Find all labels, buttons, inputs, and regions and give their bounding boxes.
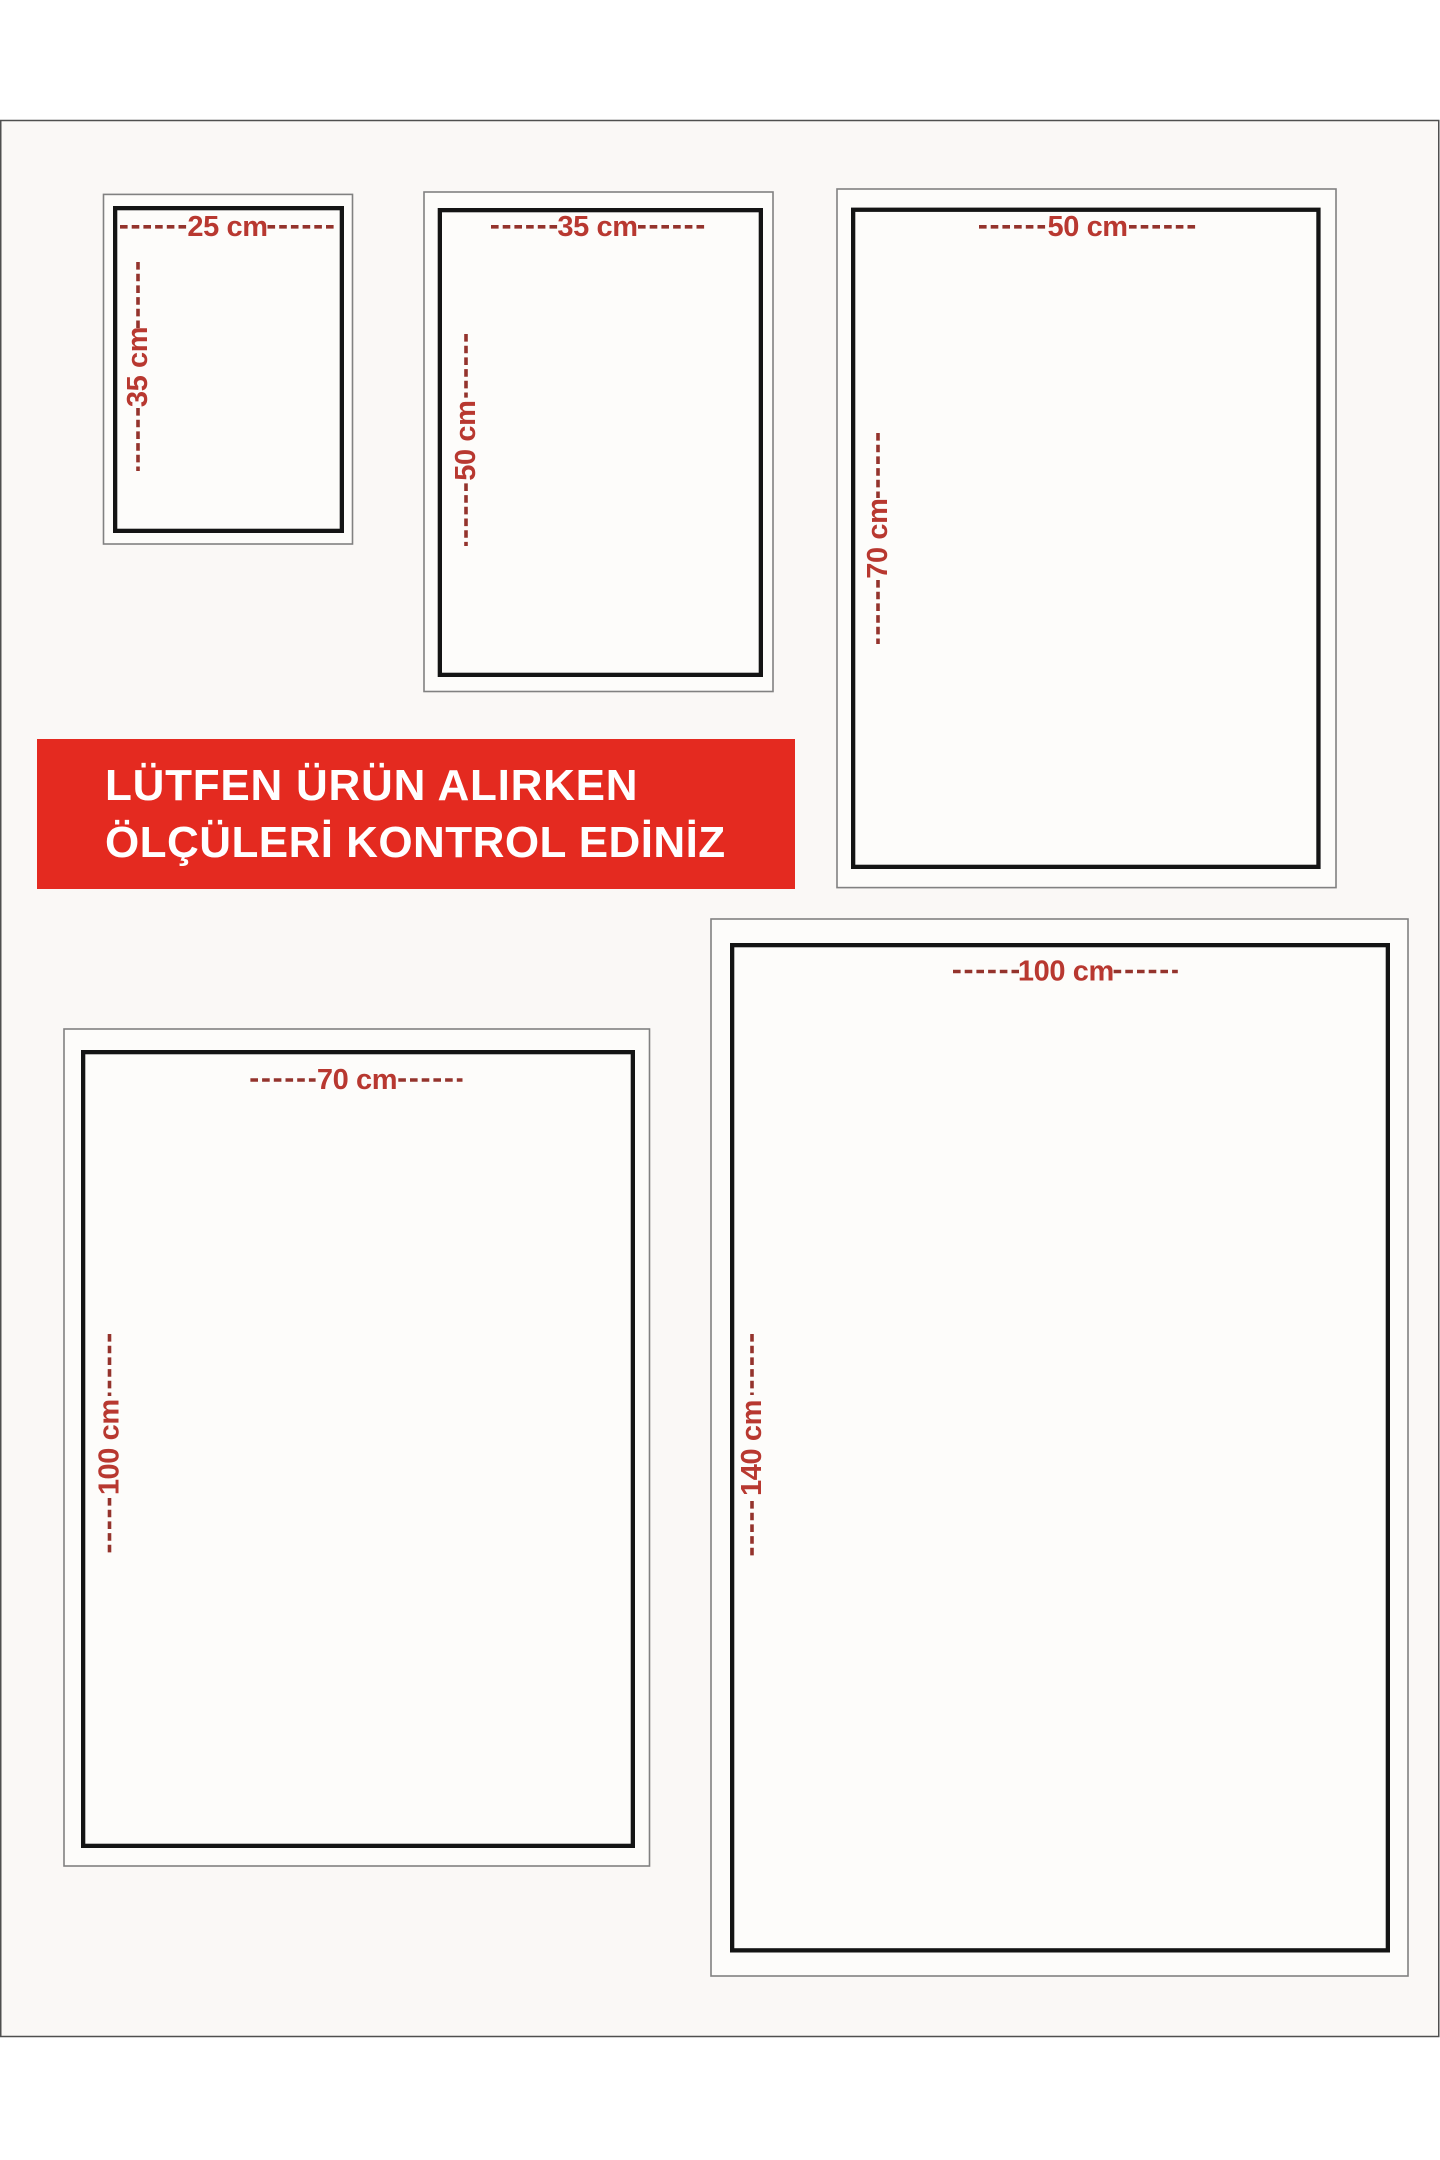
svg-text:35 cm: 35 cm (557, 211, 637, 243)
svg-text:140 cm: 140 cm (736, 1400, 768, 1496)
svg-text:50 cm: 50 cm (1047, 211, 1127, 243)
svg-text:LÜTFEN ÜRÜN ALIRKEN: LÜTFEN ÜRÜN ALIRKEN (105, 761, 638, 810)
svg-text:50 cm: 50 cm (450, 400, 482, 480)
svg-text:70 cm: 70 cm (317, 1064, 397, 1096)
svg-text:100 cm: 100 cm (94, 1399, 126, 1495)
svg-text:35 cm: 35 cm (122, 327, 154, 407)
svg-text:100 cm: 100 cm (1018, 956, 1114, 988)
svg-text:70 cm: 70 cm (862, 498, 894, 578)
svg-text:25 cm: 25 cm (187, 211, 267, 243)
svg-text:ÖLÇÜLERİ KONTROL EDİNİZ: ÖLÇÜLERİ KONTROL EDİNİZ (105, 818, 726, 867)
